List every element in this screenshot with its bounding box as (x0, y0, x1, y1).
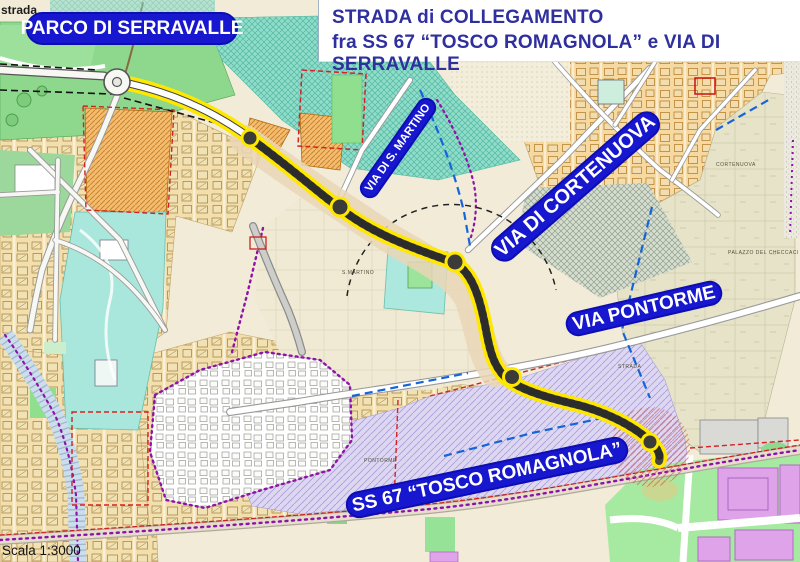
micro-label-pontorme: PONTORME (364, 458, 397, 464)
micro-label-cortenuova: CORTENUOVA (716, 162, 756, 168)
map-title-line1: STRADA di COLLEGAMENTO (332, 7, 800, 29)
map-title: STRADA di COLLEGAMENTO fra SS 67 “TOSCO … (318, 0, 800, 62)
micro-label-s-martino: S.MARTINO (342, 270, 374, 276)
planning-map-canvas (0, 0, 800, 562)
scale-label: Scala 1:3000 (2, 543, 81, 558)
map-title-line2: fra SS 67 “TOSCO ROMAGNOLA” e VIA DI SER… (332, 32, 800, 76)
micro-label-palazzo-del-checcaci: PALAZZO DEL CHECCACI (728, 250, 799, 256)
map-screenshot: STRADA di COLLEGAMENTO fra SS 67 “TOSCO … (0, 0, 800, 562)
micro-label-strada: STRADA (618, 364, 641, 370)
roundabout (104, 69, 130, 95)
road-label-parco-di-serravalle: PARCO DI SERRAVALLE (26, 12, 238, 45)
zone-rail-strip (784, 62, 800, 238)
